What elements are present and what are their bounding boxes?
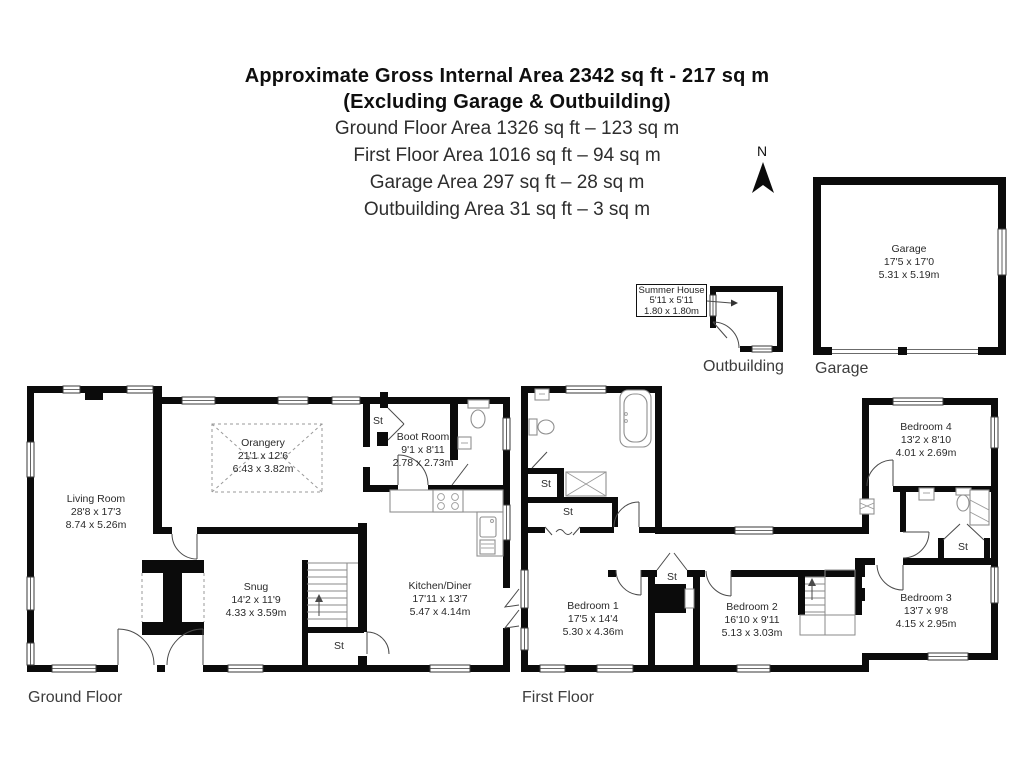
- room-label-bedroom-2: Bedroom 2 16'10 x 9'11 5.13 x 3.03m: [722, 601, 783, 640]
- st-label-first-1: St: [541, 478, 551, 490]
- room-label-bedroom-3: Bedroom 3 13'7 x 9'8 4.15 x 2.95m: [896, 592, 957, 631]
- room-label-living-room: Living Room 28'8 x 17'3 8.74 x 5.26m: [66, 493, 127, 532]
- area-line-first: First Floor Area 1016 sq ft – 94 sq m: [0, 142, 1014, 169]
- room-label-boot-room: Boot Room 9'1 x 8'11 2.78 x 2.73m: [393, 431, 454, 470]
- room-label-snug: Snug 14'2 x 11'9 4.33 x 3.59m: [226, 581, 287, 620]
- caption-ground-floor: Ground Floor: [28, 689, 122, 707]
- area-line-ground: Ground Floor Area 1326 sq ft – 123 sq m: [0, 115, 1014, 142]
- plan-header: Approximate Gross Internal Area 2342 sq …: [0, 63, 1014, 223]
- wc-fixtures: [458, 400, 489, 449]
- ensuite-fixtures: [860, 488, 989, 525]
- floorplan-page: Approximate Gross Internal Area 2342 sq …: [0, 0, 1024, 768]
- room-label-bedroom-4: Bedroom 4 13'2 x 8'10 4.01 x 2.69m: [896, 421, 957, 460]
- summer-house-callout-box: Summer House 5'11 x 5'11 1.80 x 1.80m: [636, 284, 707, 317]
- page-subtitle: (Excluding Garage & Outbuilding): [0, 89, 1014, 115]
- kitchen-fittings: [390, 490, 503, 556]
- page-title: Approximate Gross Internal Area 2342 sq …: [0, 63, 1014, 89]
- st-label-first-4: St: [958, 541, 968, 553]
- caption-garage: Garage: [815, 360, 868, 378]
- outbuilding-plan: [707, 286, 783, 352]
- st-label-boot-closet: St: [373, 415, 383, 427]
- caption-first-floor: First Floor: [522, 689, 594, 707]
- room-label-bedroom-1: Bedroom 1 17'5 x 14'4 5.30 x 4.36m: [563, 600, 624, 639]
- area-line-outbuilding: Outbuilding Area 31 sq ft – 3 sq m: [0, 196, 1014, 223]
- st-label-first-3: St: [667, 571, 677, 583]
- st-label-under-stairs: St: [334, 640, 344, 652]
- room-label-garage: Garage 17'5 x 17'0 5.31 x 5.19m: [879, 243, 940, 282]
- north-label: N: [757, 143, 767, 159]
- area-line-garage: Garage Area 297 sq ft – 28 sq m: [0, 169, 1014, 196]
- st-label-first-2: St: [563, 506, 573, 518]
- room-label-orangery: Orangery 21'1 x 12'6 6.43 x 3.82m: [233, 437, 294, 476]
- caption-outbuilding: Outbuilding: [703, 358, 784, 376]
- room-label-kitchen-diner: Kitchen/Diner 17'11 x 13'7 5.47 x 4.14m: [408, 580, 471, 619]
